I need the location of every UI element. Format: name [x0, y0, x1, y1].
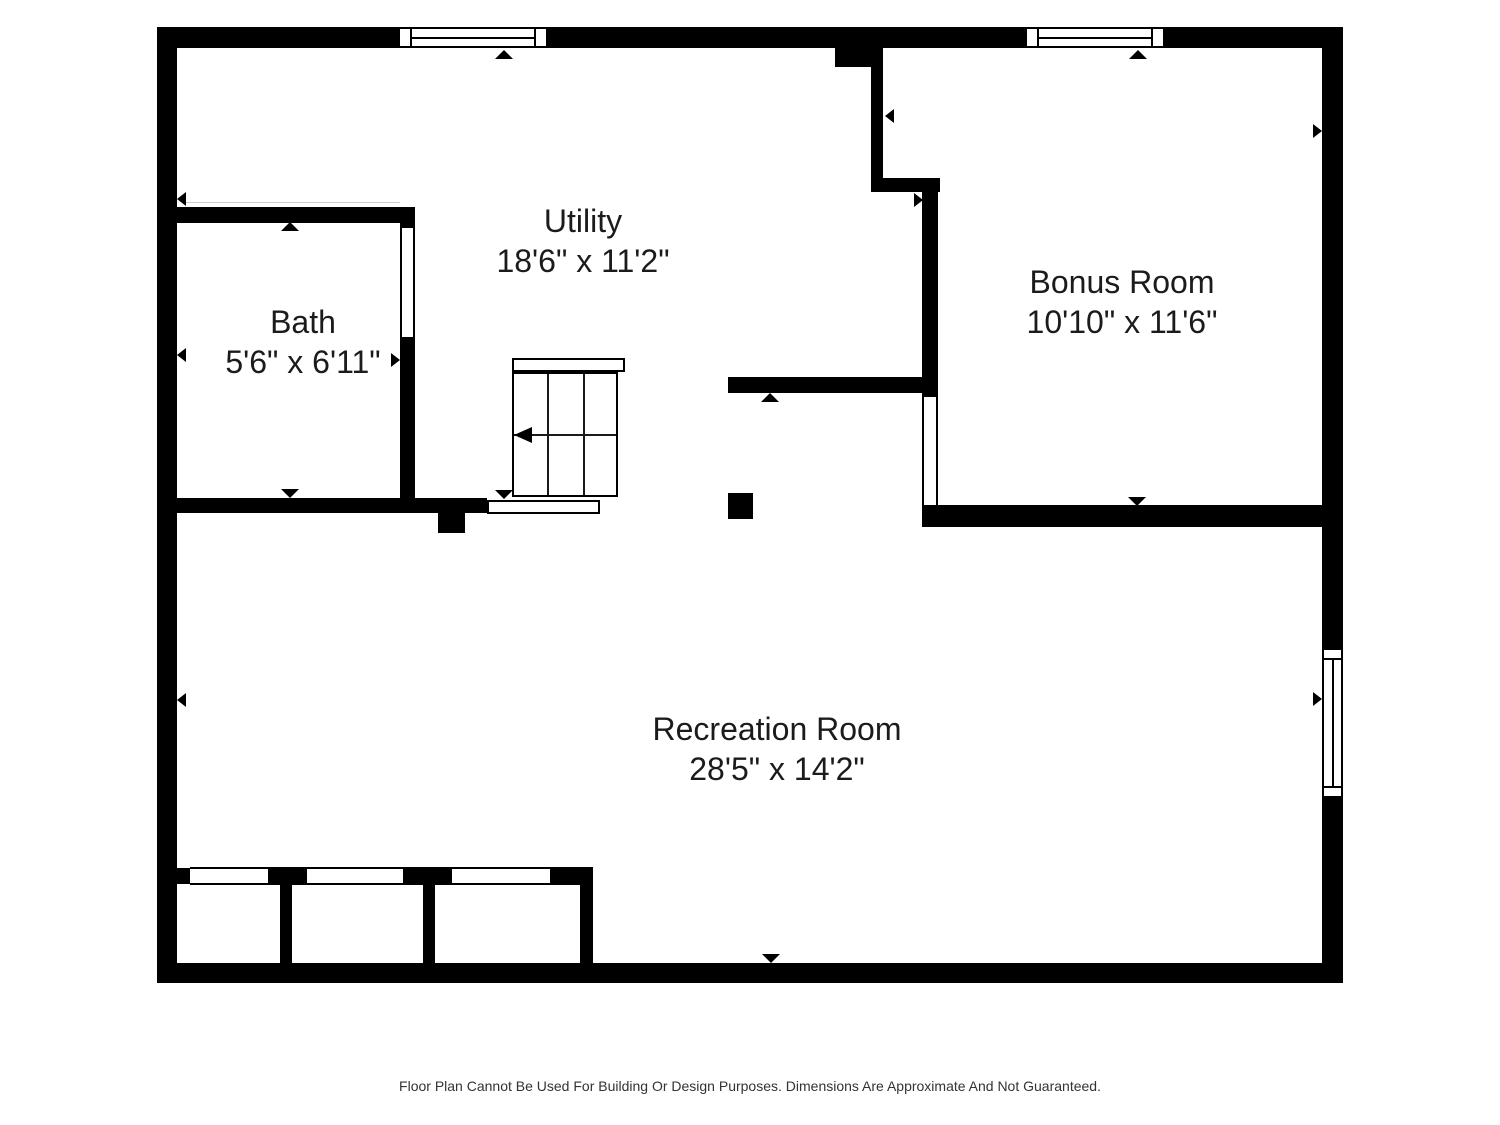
- room-dimensions: 10'10" x 11'6": [1027, 302, 1218, 342]
- window-center-line: [1039, 37, 1151, 39]
- opening-marker-down-icon: [495, 490, 513, 499]
- window-divider: [1151, 29, 1153, 46]
- opening-marker-right-icon: [1313, 692, 1322, 706]
- room-name: Bath: [225, 302, 380, 342]
- floor-plan: Utility 18'6" x 11'2" Bath 5'6" x 6'11" …: [0, 0, 1500, 1125]
- wall-exterior-right-upper: [1322, 27, 1343, 648]
- opening-marker-down-icon: [281, 489, 299, 498]
- wall-exterior-right-lower: [1322, 798, 1343, 983]
- room-label-bath: Bath 5'6" x 6'11": [225, 302, 380, 382]
- opening-marker-up-icon: [761, 393, 779, 402]
- room-dimensions: 18'6" x 11'2": [496, 241, 669, 281]
- window-divider: [1324, 786, 1341, 788]
- opening-marker-left-icon: [885, 109, 894, 123]
- bonus-door-opening: [922, 397, 938, 505]
- opening-marker-up-icon: [1129, 50, 1147, 59]
- room-dimensions: 28'5" x 14'2": [653, 749, 902, 789]
- closet-opening-1: [190, 867, 268, 885]
- wall-bath-bottom: [157, 498, 487, 513]
- stairs-direction-arrow-icon: [514, 427, 532, 443]
- room-name: Bonus Room: [1027, 262, 1218, 302]
- opening-marker-down-icon: [1128, 497, 1146, 506]
- wall-utility-recreation-divider: [728, 377, 923, 393]
- window-divider: [534, 29, 536, 46]
- room-label-utility: Utility 18'6" x 11'2": [496, 201, 669, 281]
- bath-opening-line: [186, 202, 400, 203]
- support-post: [728, 493, 753, 519]
- wall-entry-jog: [883, 178, 940, 192]
- opening-marker-up-icon: [495, 50, 513, 59]
- closet-partition-1-stem: [280, 885, 292, 963]
- window-center-line: [412, 37, 534, 39]
- closet-left-stub: [177, 868, 190, 884]
- stairs-bottom-landing: [487, 500, 600, 514]
- room-label-recreation: Recreation Room 28'5" x 14'2": [653, 709, 902, 789]
- wall-hall-vertical: [922, 192, 938, 397]
- opening-marker-left-icon: [177, 693, 186, 707]
- stairs-top-landing: [512, 358, 625, 372]
- opening-marker-left-icon: [177, 192, 186, 206]
- closet-opening-2: [307, 867, 403, 885]
- closet-partition-1-cap: [268, 867, 307, 885]
- room-label-bonus: Bonus Room 10'10" x 11'6": [1027, 262, 1218, 342]
- wall-bath-bottom-stub: [438, 513, 465, 533]
- room-name: Recreation Room: [653, 709, 902, 749]
- wall-bonus-bottom: [922, 505, 1343, 527]
- closet-opening-3: [452, 867, 550, 885]
- wall-exterior-top: [157, 27, 1343, 48]
- window-top-left: [398, 27, 548, 48]
- opening-marker-right-icon: [1313, 124, 1322, 138]
- closet-partition-2-stem: [423, 885, 435, 963]
- window-right-wall: [1322, 648, 1343, 798]
- room-name: Utility: [496, 201, 669, 241]
- opening-marker-right-icon: [914, 193, 923, 207]
- wall-bath-top: [157, 207, 415, 223]
- closet-end-stem: [580, 885, 593, 963]
- wall-bath-right-upper: [400, 207, 415, 228]
- opening-marker-down-icon: [762, 954, 780, 963]
- window-center-line: [1332, 660, 1334, 786]
- window-top-right: [1025, 27, 1165, 48]
- opening-marker-right-icon: [391, 353, 400, 367]
- wall-entry-vertical: [871, 67, 883, 192]
- opening-marker-left-icon: [177, 348, 186, 362]
- bath-door-opening: [400, 228, 415, 337]
- wall-entry-stub-top: [835, 48, 883, 67]
- wall-exterior-bottom: [157, 963, 1343, 983]
- closet-end-cap: [550, 867, 593, 885]
- opening-marker-up-icon: [281, 222, 299, 231]
- closet-partition-2-cap: [403, 867, 452, 885]
- wall-bath-right-lower: [400, 337, 415, 513]
- room-dimensions: 5'6" x 6'11": [225, 342, 380, 382]
- disclaimer-text: Floor Plan Cannot Be Used For Building O…: [399, 1078, 1101, 1094]
